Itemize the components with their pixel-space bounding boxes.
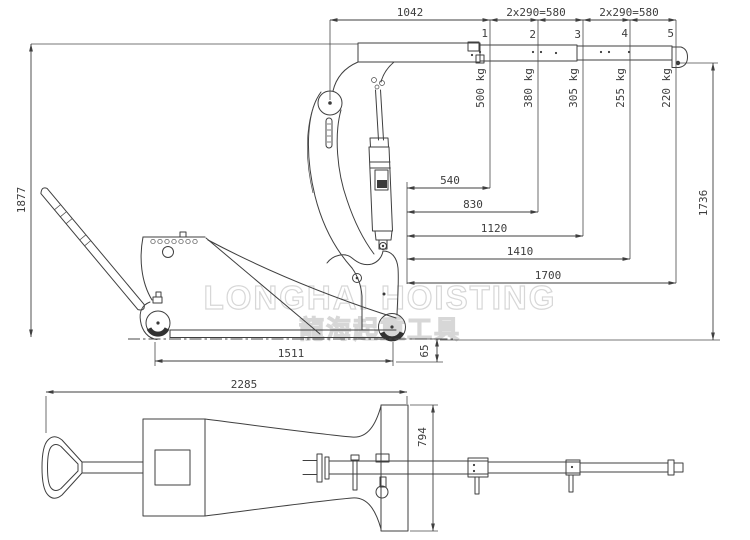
plan-body [143, 405, 408, 531]
dim-overall-height: 1877 [15, 187, 28, 214]
watermark: LONGHAI HOISTING 龍海起重工具 [204, 279, 557, 344]
reach-830: 830 [463, 198, 483, 211]
reach-1700: 1700 [535, 269, 562, 282]
dim-hook-height: 1736 [697, 190, 710, 217]
capacity-4: 255 kg [614, 68, 627, 108]
hook-pos-3: 3 [574, 28, 581, 41]
capacity-1: 500 kg [474, 68, 487, 108]
hydraulic-cylinder [369, 85, 393, 250]
handle-lever [41, 188, 144, 310]
hook-pos-1: 1 [481, 27, 488, 40]
technical-drawing: LONGHAI HOISTING 龍海起重工具 [0, 0, 750, 540]
watermark-english: LONGHAI HOISTING [204, 279, 557, 316]
dim-overall-width: 794 [416, 427, 429, 447]
capacity-2: 380 kg [522, 68, 535, 108]
dim-wheelbase: 1511 [278, 347, 305, 360]
plan-handle-grip [42, 437, 143, 499]
dim-boom-outer: 2x290=580 [599, 6, 659, 19]
capacity-5: 220 kg [660, 68, 673, 108]
reach-540: 540 [440, 174, 460, 187]
plan-view: 2285 794 [42, 378, 683, 531]
dim-rear-offset: 65 [418, 344, 431, 357]
capacity-3: 305 kg [567, 68, 580, 108]
dim-overall-length: 2285 [231, 378, 258, 391]
front-wheel [140, 292, 170, 340]
plan-boom [303, 454, 683, 498]
telescopic-boom [358, 42, 688, 68]
reach-1120: 1120 [481, 222, 508, 235]
dim-boom-base: 1042 [397, 6, 424, 19]
hook-pos-5: 5 [667, 27, 674, 40]
reach-1410: 1410 [507, 245, 534, 258]
hook-pos-4: 4 [621, 27, 628, 40]
hook-pos-2: 2 [529, 28, 536, 41]
dim-boom-mid: 2x290=580 [506, 6, 566, 19]
